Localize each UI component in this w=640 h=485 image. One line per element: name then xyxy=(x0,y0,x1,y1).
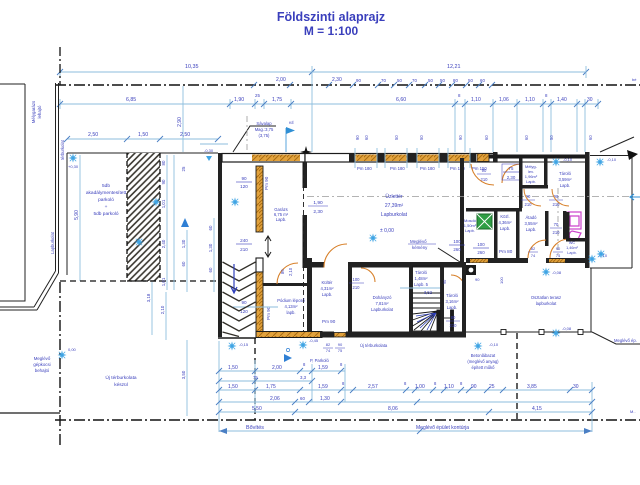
svg-text:1,01: 1,01 xyxy=(161,277,166,286)
svg-text:260: 260 xyxy=(453,247,461,252)
svg-text:10,35: 10,35 xyxy=(185,64,199,70)
svg-text:60: 60 xyxy=(208,267,213,272)
svg-text:-0,30: -0,30 xyxy=(204,148,214,153)
svg-text:+0,30: +0,30 xyxy=(68,164,79,169)
svg-text:1,59: 1,59 xyxy=(318,365,328,371)
svg-text:kémény: kémény xyxy=(412,245,428,250)
svg-text:Lapb.: Lapb. xyxy=(322,292,332,297)
svg-text:100: 100 xyxy=(477,242,485,247)
svg-text:3,16m²: 3,16m² xyxy=(445,299,459,304)
svg-text:1,30: 1,30 xyxy=(181,239,186,248)
svg-text:Dohányzó: Dohányzó xyxy=(373,295,393,300)
svg-text:5,90: 5,90 xyxy=(74,210,80,220)
svg-text:lehajtó: lehajtó xyxy=(37,105,42,118)
svg-text:25: 25 xyxy=(255,93,260,98)
svg-text:74: 74 xyxy=(556,253,561,258)
svg-text:260: 260 xyxy=(477,250,485,255)
svg-text:Mag.:3,75: Mag.:3,75 xyxy=(255,127,274,132)
svg-text:90: 90 xyxy=(355,135,360,140)
svg-text:60: 60 xyxy=(480,78,485,83)
svg-text:4,31m²: 4,31m² xyxy=(320,286,334,291)
svg-text:3,18: 3,18 xyxy=(146,293,151,302)
svg-text:240: 240 xyxy=(240,238,248,243)
svg-text:210: 210 xyxy=(353,285,361,290)
svg-text:1,50: 1,50 xyxy=(138,132,148,138)
svg-text:50: 50 xyxy=(440,78,445,83)
svg-text:Sávalap: Sávalap xyxy=(256,121,272,126)
svg-text:-0,10: -0,10 xyxy=(489,342,499,347)
svg-text:50: 50 xyxy=(549,135,554,140)
svg-text:Meglévő ép.: Meglévő ép. xyxy=(614,338,637,343)
svg-text:Átadó: Átadó xyxy=(526,215,538,220)
svg-text:készül: készül xyxy=(114,382,128,388)
svg-text:1,90: 1,90 xyxy=(313,200,323,206)
svg-text:60: 60 xyxy=(300,396,305,401)
svg-text:Pm 90: Pm 90 xyxy=(322,319,336,324)
svg-text:2,30: 2,30 xyxy=(507,175,516,180)
svg-text:épített műkő: épített műkő xyxy=(471,365,495,370)
svg-text:Tároló: Tároló xyxy=(446,293,459,298)
svg-text:70: 70 xyxy=(554,222,559,227)
svg-text:3,59m²: 3,59m² xyxy=(558,177,572,182)
svg-text:2,10: 2,10 xyxy=(288,267,293,276)
svg-text:60: 60 xyxy=(364,135,369,140)
svg-text:210: 210 xyxy=(240,247,248,252)
svg-text:90: 90 xyxy=(556,246,561,251)
svg-text:210: 210 xyxy=(450,323,458,328)
svg-text:80: 80 xyxy=(451,315,456,320)
svg-text:térburkolat: térburkolat xyxy=(60,139,65,160)
svg-text:7,81m²: 7,81m² xyxy=(375,301,389,306)
svg-text:1,40: 1,40 xyxy=(557,97,567,103)
svg-text:5db parkoló: 5db parkoló xyxy=(93,211,118,217)
svg-text:KÉ: KÉ xyxy=(289,120,295,125)
svg-text:-0,10: -0,10 xyxy=(563,157,573,162)
svg-text:Új térburkolata: Új térburkolata xyxy=(360,343,388,348)
svg-text:3,52: 3,52 xyxy=(424,290,433,295)
svg-text:90: 90 xyxy=(482,168,487,173)
svg-text:Pm 180: Pm 180 xyxy=(357,166,372,171)
svg-text:gépkocsi: gépkocsi xyxy=(33,362,50,367)
svg-text:2,10: 2,10 xyxy=(160,305,165,314)
svg-text:Lapb.: Lapb. xyxy=(500,226,510,231)
svg-text:4,36m²: 4,36m² xyxy=(498,220,512,225)
svg-text:60: 60 xyxy=(588,135,593,140)
svg-text:1,30: 1,30 xyxy=(208,243,213,252)
svg-text:Pm 90: Pm 90 xyxy=(264,176,269,190)
svg-text:5,50: 5,50 xyxy=(252,406,262,412)
svg-text:Lapb.: Lapb. xyxy=(526,179,536,184)
svg-text:50: 50 xyxy=(428,78,433,83)
svg-text:90: 90 xyxy=(475,277,480,282)
svg-text:210: 210 xyxy=(553,230,561,235)
svg-text:100: 100 xyxy=(499,277,504,284)
svg-text:70: 70 xyxy=(381,78,386,83)
svg-text:WC: WC xyxy=(569,241,576,245)
svg-text:bé: bé xyxy=(632,77,637,82)
svg-text:Pm 80: Pm 80 xyxy=(499,249,513,254)
svg-text:1,50: 1,50 xyxy=(228,384,238,390)
svg-text:86: 86 xyxy=(280,269,285,274)
svg-text:Betonlábazat: Betonlábazat xyxy=(471,353,496,358)
svg-text:82: 82 xyxy=(326,342,331,347)
svg-text:(3,75): (3,75) xyxy=(259,133,271,138)
svg-text:Mélygarázs: Mélygarázs xyxy=(31,100,36,123)
svg-text:4,13m²: 4,13m² xyxy=(284,304,298,309)
svg-text:akadálymentesített: akadálymentesített xyxy=(86,190,127,196)
svg-text:1,75: 1,75 xyxy=(266,384,276,390)
svg-text:Osztatlan terasz: Osztatlan terasz xyxy=(531,295,561,300)
svg-text:Kültér: Kültér xyxy=(322,280,334,285)
svg-text:Meglévő: Meglévő xyxy=(34,356,51,361)
svg-text:60: 60 xyxy=(181,261,186,266)
svg-text:Lapb.: Lapb. xyxy=(526,227,536,232)
svg-text:Lapb.: Lapb. xyxy=(560,183,570,188)
svg-text:behajtó: behajtó xyxy=(35,368,50,373)
svg-text:50: 50 xyxy=(394,135,399,140)
svg-text:60: 60 xyxy=(208,225,213,230)
svg-text:50: 50 xyxy=(397,78,402,83)
svg-text:Lapb.: Lapb. xyxy=(447,305,457,310)
svg-text:Pm 180: Pm 180 xyxy=(390,166,405,171)
svg-text:90: 90 xyxy=(458,135,463,140)
svg-text:1,10: 1,10 xyxy=(444,384,454,390)
svg-text:1,59: 1,59 xyxy=(318,384,328,390)
svg-text:Bővítés: Bővítés xyxy=(246,425,264,431)
svg-text:3,3: 3,3 xyxy=(300,375,307,380)
svg-text:30: 30 xyxy=(587,97,593,103)
svg-text:2,00: 2,00 xyxy=(272,365,282,371)
svg-text:-0,10: -0,10 xyxy=(607,157,617,162)
svg-text:1,10: 1,10 xyxy=(471,97,481,103)
svg-text:2,90: 2,90 xyxy=(177,117,183,127)
svg-text:Földszinti alaprajz: Földszinti alaprajz xyxy=(277,10,385,24)
svg-text:100: 100 xyxy=(353,277,361,282)
svg-text:74: 74 xyxy=(531,253,536,258)
svg-text:Pm 90: Pm 90 xyxy=(266,306,271,320)
svg-text:60: 60 xyxy=(484,135,489,140)
svg-text:3,55m²: 3,55m² xyxy=(524,221,538,226)
svg-text:Meglévő: Meglévő xyxy=(410,239,427,244)
svg-text:Lapb.: Lapb. xyxy=(465,228,475,233)
svg-text:-0,08: -0,08 xyxy=(562,326,572,331)
svg-text:30: 30 xyxy=(573,384,579,390)
svg-text:6,60: 6,60 xyxy=(396,97,406,103)
svg-text:Pódium lépcső: Pódium lépcső xyxy=(277,298,305,303)
svg-text:Lapb.: Lapb. xyxy=(276,217,286,222)
svg-text:2,57: 2,57 xyxy=(368,384,378,390)
svg-text:Lapburkolat: Lapburkolat xyxy=(371,307,394,312)
svg-text:82: 82 xyxy=(531,246,536,251)
svg-text:50: 50 xyxy=(419,135,424,140)
svg-text:100: 100 xyxy=(453,239,461,244)
svg-text:2,30: 2,30 xyxy=(332,77,342,83)
svg-text:74: 74 xyxy=(326,348,331,353)
svg-text:0,00: 0,00 xyxy=(68,347,77,352)
svg-text:80: 80 xyxy=(161,160,166,165)
svg-text:Lapb.: Lapb. xyxy=(567,251,577,255)
svg-text:12,21: 12,21 xyxy=(447,64,461,70)
svg-text:90: 90 xyxy=(471,384,477,390)
svg-text:± 0,00: ± 0,00 xyxy=(380,228,394,234)
svg-text:2,50: 2,50 xyxy=(88,132,98,138)
svg-text:lapb.: lapb. xyxy=(286,310,295,315)
svg-text:-0,15: -0,15 xyxy=(239,342,249,347)
svg-text:1,10: 1,10 xyxy=(525,97,535,103)
svg-text:75: 75 xyxy=(338,348,343,353)
svg-text:Üzlettér: Üzlettér xyxy=(385,193,403,200)
svg-text:1,00: 1,00 xyxy=(415,384,425,390)
svg-text:1,50: 1,50 xyxy=(228,365,238,371)
svg-text:3,50: 3,50 xyxy=(181,370,186,379)
svg-text:1,06: 1,06 xyxy=(499,97,509,103)
svg-text:Közl.: Közl. xyxy=(500,214,509,219)
svg-text:Tároló: Tároló xyxy=(415,270,428,275)
svg-text:Lapburkolat: Lapburkolat xyxy=(381,212,408,218)
svg-text:-0,45: -0,45 xyxy=(309,338,319,343)
svg-text:1,48m²: 1,48m² xyxy=(414,276,428,281)
svg-text:M..: M.. xyxy=(630,409,636,414)
svg-text:1,46m²: 1,46m² xyxy=(566,246,579,250)
svg-text:70: 70 xyxy=(412,78,417,83)
svg-text:2,00: 2,00 xyxy=(276,77,286,83)
svg-text:90: 90 xyxy=(338,342,343,347)
svg-text:27,39m²: 27,39m² xyxy=(385,203,404,209)
svg-text:1,01: 1,01 xyxy=(161,199,166,208)
svg-text:120: 120 xyxy=(240,184,248,189)
svg-text:80: 80 xyxy=(453,78,458,83)
svg-text:+: + xyxy=(105,205,108,210)
svg-text:(meglévő anyag): (meglévő anyag) xyxy=(467,359,499,364)
svg-text:3,85: 3,85 xyxy=(527,384,537,390)
svg-text:25: 25 xyxy=(489,384,495,390)
svg-text:8,06: 8,06 xyxy=(388,406,398,412)
svg-text:5db: 5db xyxy=(102,183,110,189)
svg-text:Lapburkolat: Lapburkolat xyxy=(50,231,55,254)
svg-text:Meglévő épület kontúrja: Meglévő épület kontúrja xyxy=(416,425,469,431)
svg-text:parkoló: parkoló xyxy=(98,197,114,203)
svg-text:-0,08: -0,08 xyxy=(552,270,562,275)
svg-text:90: 90 xyxy=(356,78,361,83)
svg-text:90: 90 xyxy=(161,179,166,184)
svg-text:4,15: 4,15 xyxy=(532,406,542,412)
svg-text:60: 60 xyxy=(524,135,529,140)
svg-text:90: 90 xyxy=(241,176,247,181)
svg-text:P, Parkoló: P, Parkoló xyxy=(310,358,329,363)
svg-text:Pm 180: Pm 180 xyxy=(420,166,435,171)
svg-text:2,50: 2,50 xyxy=(180,132,190,138)
svg-text:25: 25 xyxy=(181,166,186,171)
svg-text:1,90: 1,90 xyxy=(234,97,244,103)
svg-text:2,06: 2,06 xyxy=(270,396,280,402)
svg-text:75: 75 xyxy=(509,166,514,171)
svg-text:1,75: 1,75 xyxy=(272,97,282,103)
svg-text:1,30: 1,30 xyxy=(320,396,330,402)
svg-text:6,85: 6,85 xyxy=(126,97,136,103)
svg-text:90: 90 xyxy=(443,280,447,284)
svg-text:75: 75 xyxy=(253,375,258,380)
svg-text:90: 90 xyxy=(241,300,247,305)
svg-text:Tároló: Tároló xyxy=(559,171,572,176)
svg-text:2,30: 2,30 xyxy=(313,209,323,215)
svg-text:Lapb. 5: Lapb. 5 xyxy=(414,282,429,287)
svg-text:Új térburkolata: Új térburkolata xyxy=(105,374,137,381)
svg-text:M = 1:100: M = 1:100 xyxy=(304,24,359,38)
svg-text:2,40: 2,40 xyxy=(161,239,166,248)
svg-text:lapburkolat: lapburkolat xyxy=(536,301,557,306)
